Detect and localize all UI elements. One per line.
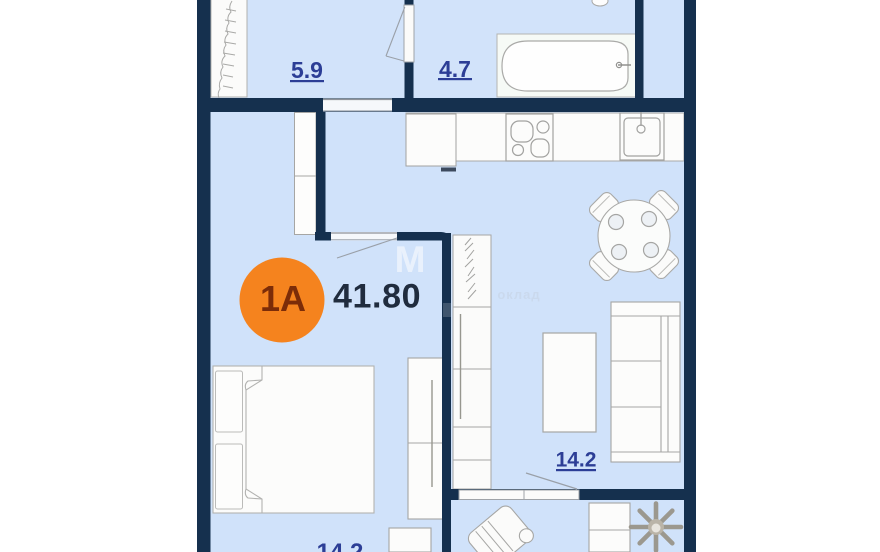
- svg-text:14.2: 14.2: [317, 539, 364, 552]
- svg-text:1A: 1A: [260, 278, 306, 319]
- svg-text:14.2: 14.2: [556, 449, 597, 472]
- svg-text:М: М: [395, 239, 426, 280]
- svg-text:41.80: 41.80: [333, 278, 421, 316]
- svg-text:оклад: оклад: [497, 287, 540, 302]
- svg-text:5.9: 5.9: [291, 57, 323, 83]
